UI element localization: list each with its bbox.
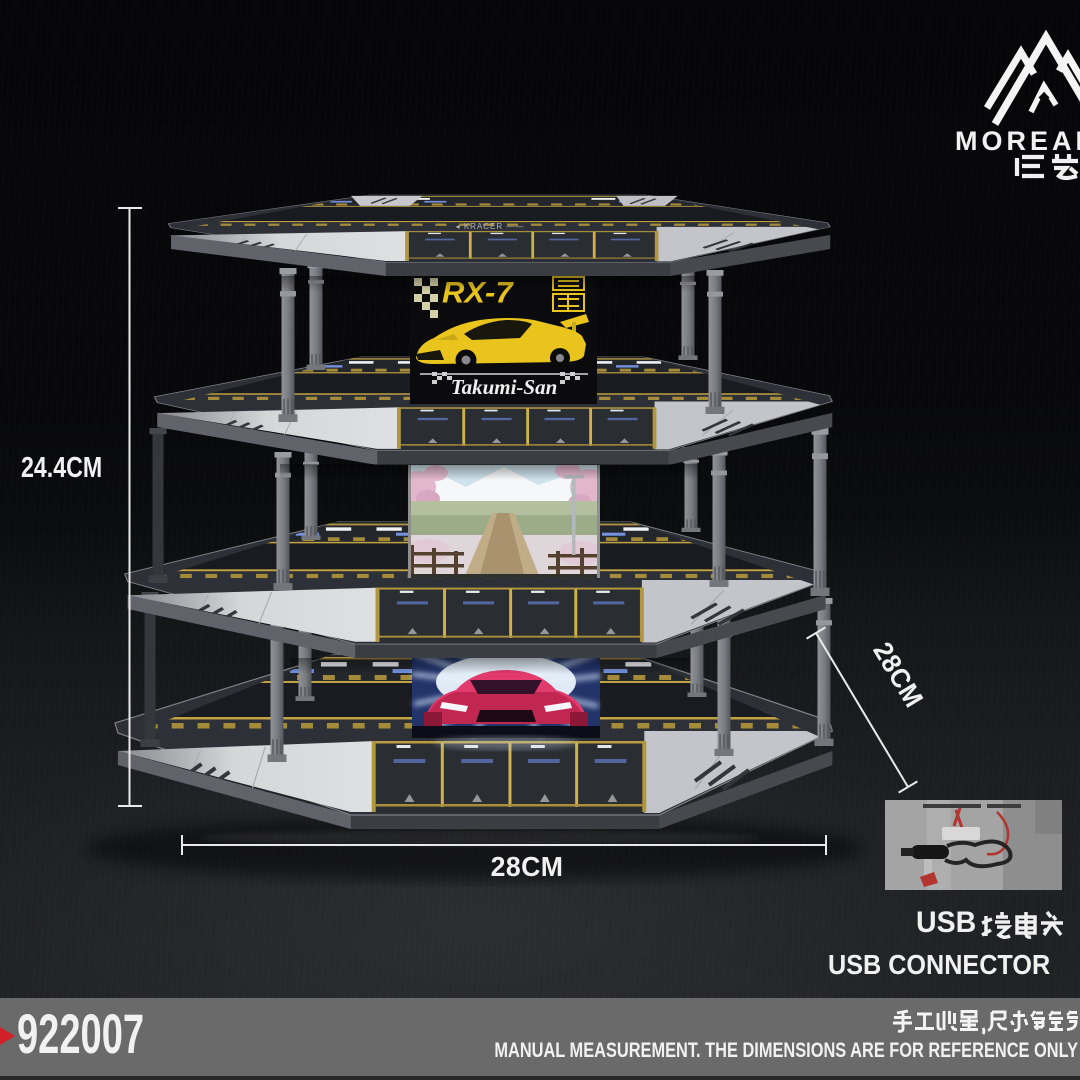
svg-text:◂ KRACER ——: ◂ KRACER ——	[456, 222, 525, 231]
svg-text:Takumi-San: Takumi-San	[451, 375, 558, 399]
